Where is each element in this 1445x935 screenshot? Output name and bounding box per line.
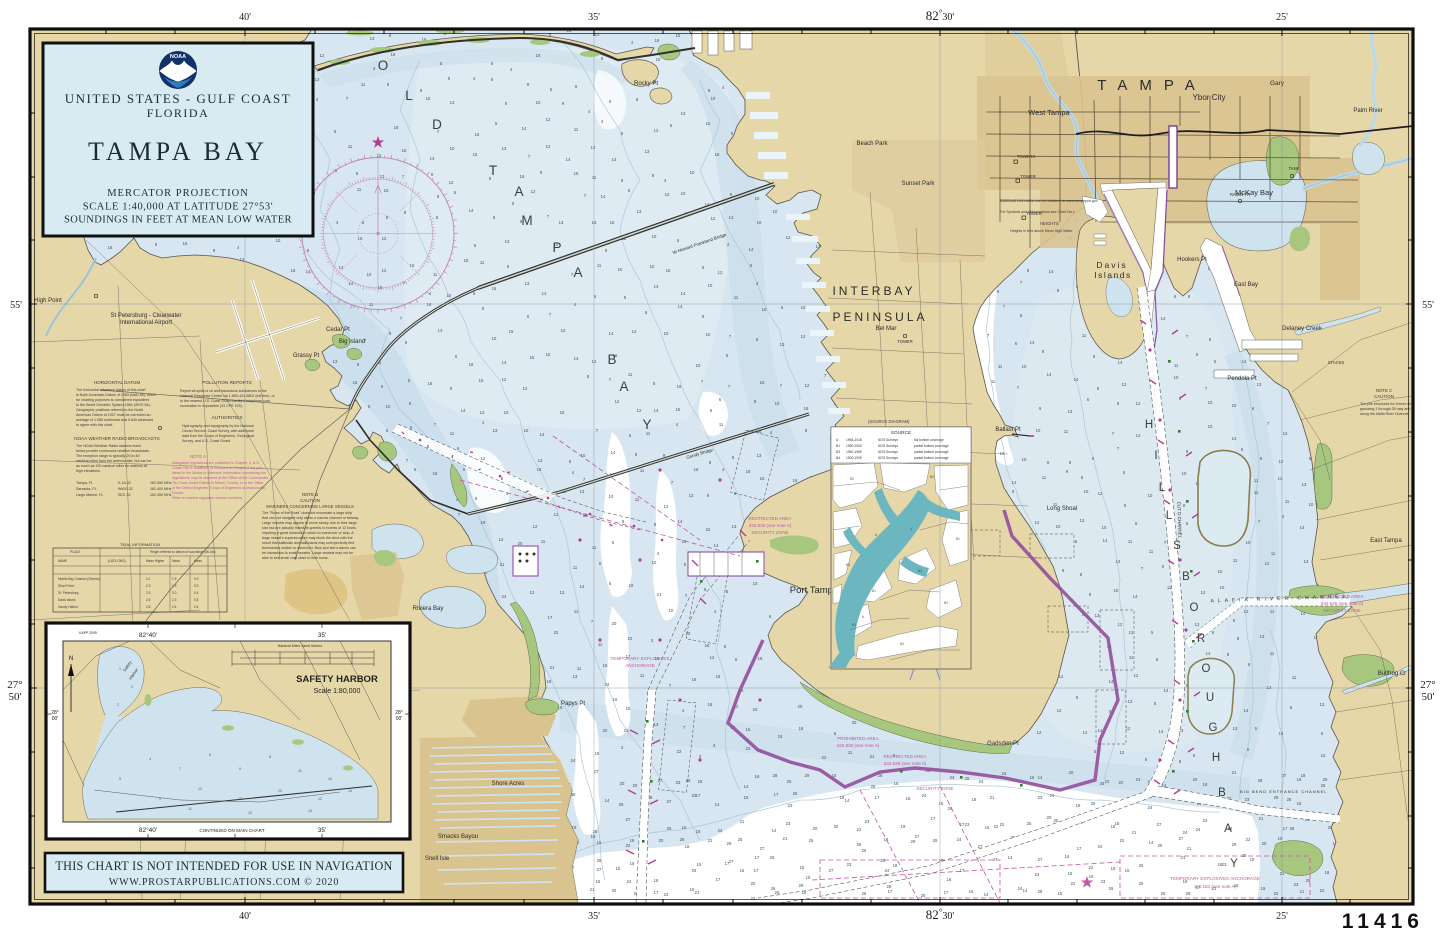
svg-text:Bullfrog Cr: Bullfrog Cr — [1378, 671, 1406, 677]
svg-text:14: 14 — [678, 304, 683, 309]
svg-text:12: 12 — [523, 386, 528, 391]
svg-text:10: 10 — [1036, 428, 1041, 433]
svg-text:24: 24 — [885, 868, 890, 873]
svg-text:13: 13 — [480, 410, 485, 415]
svg-text:9: 9 — [159, 797, 161, 801]
svg-text:14: 14 — [1049, 269, 1054, 274]
svg-text:10: 10 — [609, 494, 614, 499]
svg-text:20: 20 — [852, 720, 857, 725]
svg-text:SAFETY HARBOR: SAFETY HARBOR — [296, 674, 378, 685]
svg-text:26: 26 — [1109, 886, 1114, 891]
svg-text:2.4: 2.4 — [172, 605, 177, 609]
svg-text:18: 18 — [705, 643, 710, 648]
svg-text:13: 13 — [1257, 382, 1262, 387]
svg-text:15: 15 — [1068, 871, 1073, 876]
svg-text:26: 26 — [862, 891, 867, 896]
svg-text:10: 10 — [1114, 588, 1119, 593]
svg-text:24: 24 — [605, 682, 610, 687]
svg-text:Nautical Miles: Nautical Miles Yards Meters — [278, 644, 323, 648]
svg-text:12: 12 — [805, 383, 810, 388]
svg-text:20: 20 — [1262, 841, 1267, 846]
svg-text:Gandy Harbor: Gandy Harbor — [58, 605, 79, 609]
svg-text:13: 13 — [780, 342, 785, 347]
svg-text:15: 15 — [1058, 891, 1063, 896]
svg-text:28: 28 — [619, 802, 624, 807]
svg-text:10: 10 — [753, 581, 758, 586]
svg-text:10: 10 — [711, 96, 716, 101]
svg-text:18: 18 — [626, 706, 631, 711]
svg-text:10: 10 — [1022, 457, 1027, 462]
svg-text:CAUTION: CAUTION — [300, 498, 320, 503]
svg-text:17: 17 — [654, 890, 659, 895]
svg-text:12: 12 — [1120, 750, 1125, 755]
svg-text:Beach Park: Beach Park — [856, 141, 888, 147]
svg-text:High Point: High Point — [34, 298, 62, 304]
svg-text:10: 10 — [1208, 424, 1213, 429]
svg-text:19: 19 — [1076, 803, 1081, 808]
svg-text:B3: B3 — [852, 623, 856, 627]
svg-text:12: 12 — [801, 334, 806, 339]
svg-text:NOS Surveys: NOS Surveys — [878, 450, 898, 454]
svg-text:24: 24 — [753, 707, 758, 712]
svg-text:18: 18 — [1325, 870, 1330, 875]
svg-text:13: 13 — [1128, 699, 1133, 704]
svg-text:Y: Y — [642, 417, 651, 432]
svg-text:17: 17 — [960, 868, 965, 873]
svg-text:The horizontal reference datum: The horizontal reference datum of this c… — [76, 388, 146, 392]
svg-text:St Petersburg - Clearwater: St Petersburg - Clearwater — [110, 313, 181, 319]
svg-text:17: 17 — [1283, 826, 1288, 831]
svg-text:10: 10 — [561, 328, 566, 333]
svg-text:16: 16 — [610, 220, 615, 225]
svg-text:14: 14 — [1206, 651, 1211, 656]
svg-text:14: 14 — [612, 157, 617, 162]
svg-text:Gadsden Pt: Gadsden Pt — [987, 741, 1019, 747]
svg-text:12: 12 — [546, 117, 551, 122]
svg-text:Ballast Pt: Ballast Pt — [995, 427, 1021, 433]
svg-text:18: 18 — [778, 734, 783, 739]
svg-text:12: 12 — [1126, 726, 1131, 731]
svg-text:18: 18 — [1115, 821, 1120, 826]
svg-text:14: 14 — [1161, 316, 1166, 321]
svg-text:INTERBAY: INTERBAY — [832, 284, 915, 298]
svg-text:12: 12 — [664, 504, 669, 509]
svg-text:13: 13 — [560, 590, 565, 595]
svg-text:13: 13 — [450, 100, 455, 105]
svg-text:16: 16 — [613, 697, 618, 702]
svg-text:11: 11 — [357, 187, 362, 192]
svg-text:10: 10 — [1084, 489, 1089, 494]
svg-text:15: 15 — [384, 188, 389, 193]
svg-text:RESTRICTED AREA: RESTRICTED AREA — [749, 516, 793, 521]
svg-text:26: 26 — [667, 826, 672, 831]
svg-text:20: 20 — [659, 838, 664, 843]
svg-text:Mean Higher: Mean Higher — [146, 559, 165, 563]
svg-text:12: 12 — [1265, 561, 1270, 566]
svg-text:22: 22 — [1320, 888, 1325, 893]
svg-text:Delaney Creek: Delaney Creek — [1282, 326, 1323, 332]
svg-text:162.550 MHz: 162.550 MHz — [150, 481, 172, 485]
svg-text:11: 11 — [298, 769, 302, 773]
svg-text:16: 16 — [291, 268, 296, 273]
svg-text:12: 12 — [1134, 673, 1139, 678]
svg-text:13: 13 — [1095, 613, 1100, 618]
svg-text:16: 16 — [391, 52, 396, 57]
svg-text:15: 15 — [806, 875, 811, 880]
svg-text:16: 16 — [547, 679, 552, 684]
svg-text:B1: B1 — [872, 589, 876, 593]
svg-text:to agree with this chart.: to agree with this chart. — [76, 423, 113, 427]
svg-text:22: 22 — [628, 636, 633, 641]
svg-text:11: 11 — [574, 609, 579, 614]
svg-text:12: 12 — [1201, 590, 1206, 595]
svg-text:23: 23 — [1222, 862, 1227, 867]
svg-text:14: 14 — [1047, 372, 1052, 377]
svg-text:12: 12 — [320, 53, 325, 58]
svg-text:14: 14 — [542, 291, 547, 296]
svg-text:25: 25 — [692, 868, 697, 873]
svg-text:22: 22 — [857, 827, 862, 832]
svg-text:18: 18 — [630, 838, 635, 843]
svg-text:21: 21 — [990, 795, 995, 800]
svg-text:22: 22 — [1119, 780, 1124, 785]
svg-text:14: 14 — [715, 802, 720, 807]
svg-text:S: S — [1173, 540, 1181, 552]
svg-text:10: 10 — [696, 363, 701, 368]
svg-text:15: 15 — [479, 378, 484, 383]
svg-text:24: 24 — [1196, 827, 1201, 832]
svg-text:16: 16 — [394, 125, 399, 130]
svg-text:26: 26 — [809, 838, 814, 843]
svg-text:13: 13 — [430, 156, 435, 161]
svg-text:to the World Geodetic System 1: to the World Geodetic System 1984 (WGS 8… — [76, 403, 151, 407]
svg-text:50': 50' — [1422, 691, 1435, 703]
svg-text:16: 16 — [353, 380, 358, 385]
svg-text:Navigation regulations are pub: Navigation regulations are published in … — [172, 461, 260, 465]
svg-text:17: 17 — [548, 615, 553, 620]
svg-text:Height referred to datum of so: Height referred to datum of soundings (M… — [150, 550, 216, 554]
svg-text:14: 14 — [1116, 559, 1121, 564]
svg-text:21: 21 — [695, 890, 700, 895]
svg-text:11: 11 — [1064, 429, 1069, 434]
svg-text:B3: B3 — [944, 601, 948, 605]
svg-text:15: 15 — [596, 879, 601, 884]
svg-text:I: I — [1154, 450, 1157, 462]
svg-text:10: 10 — [367, 272, 372, 277]
svg-text:NAME: NAME — [58, 559, 67, 563]
svg-text:11: 11 — [991, 379, 996, 384]
svg-text:16: 16 — [682, 825, 687, 830]
svg-text:14: 14 — [522, 126, 527, 131]
svg-text:18: 18 — [698, 779, 703, 784]
svg-text:B1: B1 — [956, 537, 960, 541]
svg-text:Grassy Pt: Grassy Pt — [293, 353, 320, 359]
svg-text:17: 17 — [716, 877, 721, 882]
svg-text:27: 27 — [1038, 857, 1043, 862]
svg-text:WWW.PROSTARPUBLICATIONS.COM: WWW.PROSTARPUBLICATIONS.COM © 2020 — [109, 877, 339, 888]
svg-text:12: 12 — [533, 524, 538, 529]
svg-text:23: 23 — [965, 822, 970, 827]
svg-text:18: 18 — [685, 844, 690, 849]
svg-text:14: 14 — [566, 157, 571, 162]
svg-text:10: 10 — [775, 401, 780, 406]
svg-text:10: 10 — [504, 410, 509, 415]
svg-text:16: 16 — [433, 471, 438, 476]
svg-text:13: 13 — [689, 493, 694, 498]
svg-text:NOS Surveys: NOS Surveys — [878, 438, 898, 442]
svg-text:size but are actually transit: size but are actually transit at speeds … — [262, 526, 357, 530]
svg-text:16: 16 — [715, 152, 720, 157]
svg-text:19: 19 — [1261, 886, 1266, 891]
svg-text:11: 11 — [734, 295, 739, 300]
svg-text:16: 16 — [1089, 874, 1094, 879]
svg-text:24: 24 — [1098, 844, 1103, 849]
svg-text:23: 23 — [865, 819, 870, 824]
svg-text:10: 10 — [276, 238, 281, 243]
svg-text:L: L — [405, 88, 413, 103]
svg-text:29: 29 — [1232, 842, 1237, 847]
svg-text:110.183 (see note A): 110.183 (see note A) — [1194, 884, 1237, 889]
svg-text:15: 15 — [530, 355, 535, 360]
svg-text:26: 26 — [770, 855, 775, 860]
svg-text:15: 15 — [894, 781, 899, 786]
svg-text:13: 13 — [333, 359, 338, 364]
svg-text:12: 12 — [382, 268, 387, 273]
svg-text:17: 17 — [696, 793, 701, 798]
svg-text:Sunset Park: Sunset Park — [902, 181, 936, 187]
svg-text:26: 26 — [686, 778, 691, 783]
svg-text:11: 11 — [628, 372, 633, 377]
svg-text:11: 11 — [541, 539, 546, 544]
svg-text:13: 13 — [1320, 702, 1325, 707]
svg-text:10: 10 — [524, 428, 529, 433]
svg-text:22: 22 — [746, 746, 751, 751]
svg-text:12: 12 — [711, 216, 716, 221]
svg-text:10: 10 — [581, 453, 586, 458]
svg-text:19: 19 — [972, 797, 977, 802]
svg-text:Snell Isle: Snell Isle — [425, 856, 450, 862]
svg-text:For Symbols and Abbreviations: For Symbols and Abbreviations see Chart … — [1000, 210, 1075, 214]
svg-text:15: 15 — [546, 352, 551, 357]
svg-text:11: 11 — [1271, 551, 1276, 556]
svg-text:Sarasota, FL: Sarasota, FL — [76, 487, 97, 491]
svg-text:16: 16 — [428, 381, 433, 386]
svg-text:13: 13 — [729, 215, 734, 220]
svg-text:(SOURCE DIAGRAM): (SOURCE DIAGRAM) — [868, 419, 910, 424]
svg-text:14: 14 — [502, 360, 507, 365]
svg-text:27: 27 — [1282, 773, 1287, 778]
svg-text:13: 13 — [1304, 559, 1309, 564]
svg-text:11: 11 — [450, 431, 455, 436]
svg-text:11: 11 — [1129, 655, 1134, 660]
svg-text:16: 16 — [475, 132, 480, 137]
svg-text:14: 14 — [714, 543, 719, 548]
svg-text:Additional information can be: Additional information can be obtained a… — [1000, 199, 1098, 203]
svg-text:24: 24 — [950, 775, 955, 780]
svg-text:14: 14 — [654, 408, 659, 413]
svg-text:15: 15 — [473, 152, 478, 157]
svg-text:29: 29 — [805, 773, 810, 778]
svg-text:for charting purposes is consi: for charting purposes is considered equi… — [76, 398, 149, 402]
svg-text:28: 28 — [1287, 797, 1292, 802]
svg-text:21: 21 — [1132, 830, 1137, 835]
svg-text:10: 10 — [450, 146, 455, 151]
svg-text:22: 22 — [706, 527, 711, 532]
svg-text:NOAA WEATHER RADIO BROADCASTS: NOAA WEATHER RADIO BROADCASTS — [74, 436, 159, 441]
svg-text:12: 12 — [449, 180, 454, 185]
svg-text:RESTRICTED AREA: RESTRICTED AREA — [1321, 594, 1365, 599]
svg-text:334.635 (see note A): 334.635 (see note A) — [1321, 601, 1364, 606]
svg-text:17: 17 — [931, 816, 936, 821]
svg-text:KAPP 2009: KAPP 2009 — [79, 631, 97, 635]
svg-text:11: 11 — [1082, 333, 1087, 338]
svg-text:14: 14 — [1279, 731, 1284, 736]
svg-text:WWG-32: WWG-32 — [118, 487, 133, 491]
svg-text:is North American Datum of 198: is North American Datum of 1983 (NAD 83)… — [76, 393, 156, 397]
svg-text:O: O — [1202, 663, 1211, 675]
svg-text:24: 24 — [571, 758, 576, 763]
svg-text:2.3: 2.3 — [146, 584, 151, 588]
svg-text:14: 14 — [1244, 708, 1249, 713]
svg-text:1: 1 — [119, 667, 121, 671]
svg-text:THIS CHART IS NOT INTENDED FOR: THIS CHART IS NOT INTENDED FOR USE IN NA… — [55, 859, 392, 873]
svg-text:15: 15 — [595, 751, 600, 756]
svg-text:27: 27 — [993, 857, 998, 862]
svg-text:result that sailboats and sail: result that sailboats and sailboards may… — [262, 541, 354, 545]
svg-text:27°: 27° — [7, 679, 22, 691]
svg-text:10: 10 — [1218, 569, 1223, 574]
svg-text:28: 28 — [1038, 889, 1043, 894]
svg-text:14: 14 — [678, 519, 683, 524]
svg-text:SOURCE: SOURCE — [891, 430, 912, 436]
svg-text:14: 14 — [339, 265, 344, 270]
svg-text:15: 15 — [616, 866, 621, 871]
svg-text:15: 15 — [574, 171, 579, 176]
svg-text:40': 40' — [239, 12, 251, 23]
svg-text:Cedar Pt: Cedar Pt — [326, 327, 350, 333]
svg-text:14: 14 — [744, 784, 749, 789]
svg-text:that can not navigate only wit: that can not navigate only within a narr… — [262, 516, 359, 520]
svg-text:2.3: 2.3 — [172, 598, 177, 602]
svg-text:50': 50' — [9, 691, 22, 703]
svg-text:27: 27 — [915, 834, 920, 839]
svg-text:18: 18 — [1301, 773, 1306, 778]
svg-text:26: 26 — [793, 791, 798, 796]
svg-text:16: 16 — [696, 829, 701, 834]
svg-text:15: 15 — [800, 865, 805, 870]
svg-text:22: 22 — [822, 755, 827, 760]
svg-text:10: 10 — [681, 191, 686, 196]
svg-text:15: 15 — [447, 293, 452, 298]
svg-text:11: 11 — [640, 673, 645, 678]
svg-text:21: 21 — [500, 562, 505, 567]
svg-text:14: 14 — [1074, 377, 1079, 382]
svg-text:10: 10 — [1102, 525, 1107, 530]
svg-text:11: 11 — [361, 82, 366, 87]
svg-text:Long Shoal: Long Shoal — [1047, 506, 1077, 512]
svg-text:FLORIDA: FLORIDA — [147, 106, 210, 120]
svg-text:14: 14 — [632, 329, 637, 334]
svg-text:11: 11 — [1233, 558, 1238, 563]
svg-text:20: 20 — [518, 541, 523, 546]
svg-text:14: 14 — [1232, 436, 1237, 441]
svg-text:21: 21 — [870, 754, 875, 759]
svg-text:12: 12 — [786, 235, 791, 240]
svg-text:82°40': 82°40' — [139, 826, 157, 834]
svg-text:Smacks Bayou: Smacks Bayou — [438, 834, 478, 840]
svg-text:14: 14 — [1038, 775, 1043, 780]
svg-text:16: 16 — [427, 302, 432, 307]
svg-text:below provide continuous weath: below provide continuous weather broadca… — [76, 449, 150, 453]
svg-text:full bottom coverage: full bottom coverage — [914, 438, 944, 442]
svg-text:B1: B1 — [836, 444, 840, 448]
svg-text:16: 16 — [520, 174, 525, 179]
svg-text:requiring a great distance in: requiring a great distance in which to m… — [262, 531, 354, 535]
svg-text:12: 12 — [1233, 726, 1238, 731]
svg-text:13: 13 — [645, 149, 650, 154]
svg-text:International Airport: International Airport — [120, 320, 172, 326]
svg-text:(LAT/LONG): (LAT/LONG) — [108, 559, 126, 563]
svg-text:Ocean Service, Coast Survey, w: Ocean Service, Coast Survey, with additi… — [182, 429, 254, 433]
svg-text:16: 16 — [410, 263, 415, 268]
svg-text:PLACE: PLACE — [70, 550, 80, 554]
svg-text:POLLUTION REPORTS: POLLUTION REPORTS — [202, 380, 251, 385]
svg-text:11: 11 — [719, 422, 724, 427]
svg-text:19: 19 — [692, 677, 697, 682]
svg-text:23: 23 — [1038, 795, 1043, 800]
svg-text:2.6: 2.6 — [146, 598, 151, 602]
svg-text:15: 15 — [676, 407, 681, 412]
svg-text:14: 14 — [580, 584, 585, 589]
svg-text:B4: B4 — [836, 456, 840, 460]
svg-text:Davis Island: Davis Island — [58, 598, 76, 602]
svg-text:14: 14 — [1133, 594, 1138, 599]
svg-text:PENINSULA: PENINSULA — [832, 310, 927, 324]
svg-text:11: 11 — [1128, 539, 1133, 544]
svg-text:14: 14 — [306, 269, 311, 274]
svg-text:12: 12 — [718, 270, 723, 275]
svg-text:82°40': 82°40' — [139, 631, 157, 639]
svg-text:21: 21 — [783, 836, 788, 841]
svg-text:12: 12 — [1059, 674, 1064, 679]
svg-text:East Bay: East Bay — [1234, 282, 1258, 288]
svg-text:23: 23 — [1203, 818, 1208, 823]
svg-text:12: 12 — [1129, 630, 1134, 635]
svg-text:14: 14 — [749, 247, 754, 252]
svg-text:13: 13 — [1302, 482, 1307, 487]
svg-text:13: 13 — [559, 220, 564, 225]
svg-text:14: 14 — [540, 432, 545, 437]
svg-text:13: 13 — [505, 239, 510, 244]
svg-text:12: 12 — [1035, 520, 1040, 525]
svg-text:18: 18 — [629, 583, 634, 588]
svg-text:12: 12 — [318, 797, 322, 801]
svg-text:26: 26 — [1139, 863, 1144, 868]
svg-text:15: 15 — [697, 862, 702, 867]
svg-text:13: 13 — [308, 809, 312, 813]
svg-text:23: 23 — [1035, 872, 1040, 877]
svg-text:24: 24 — [1183, 830, 1188, 835]
svg-text:Largo Marine, FL: Largo Marine, FL — [76, 493, 103, 497]
svg-text:19: 19 — [716, 674, 721, 679]
svg-text:10: 10 — [652, 234, 657, 239]
svg-text:10: 10 — [650, 264, 655, 269]
svg-text:17: 17 — [754, 868, 759, 873]
svg-text:11: 11 — [188, 807, 192, 811]
svg-text:13: 13 — [591, 145, 596, 150]
svg-text:19: 19 — [1250, 857, 1255, 862]
svg-text:10: 10 — [618, 267, 623, 272]
